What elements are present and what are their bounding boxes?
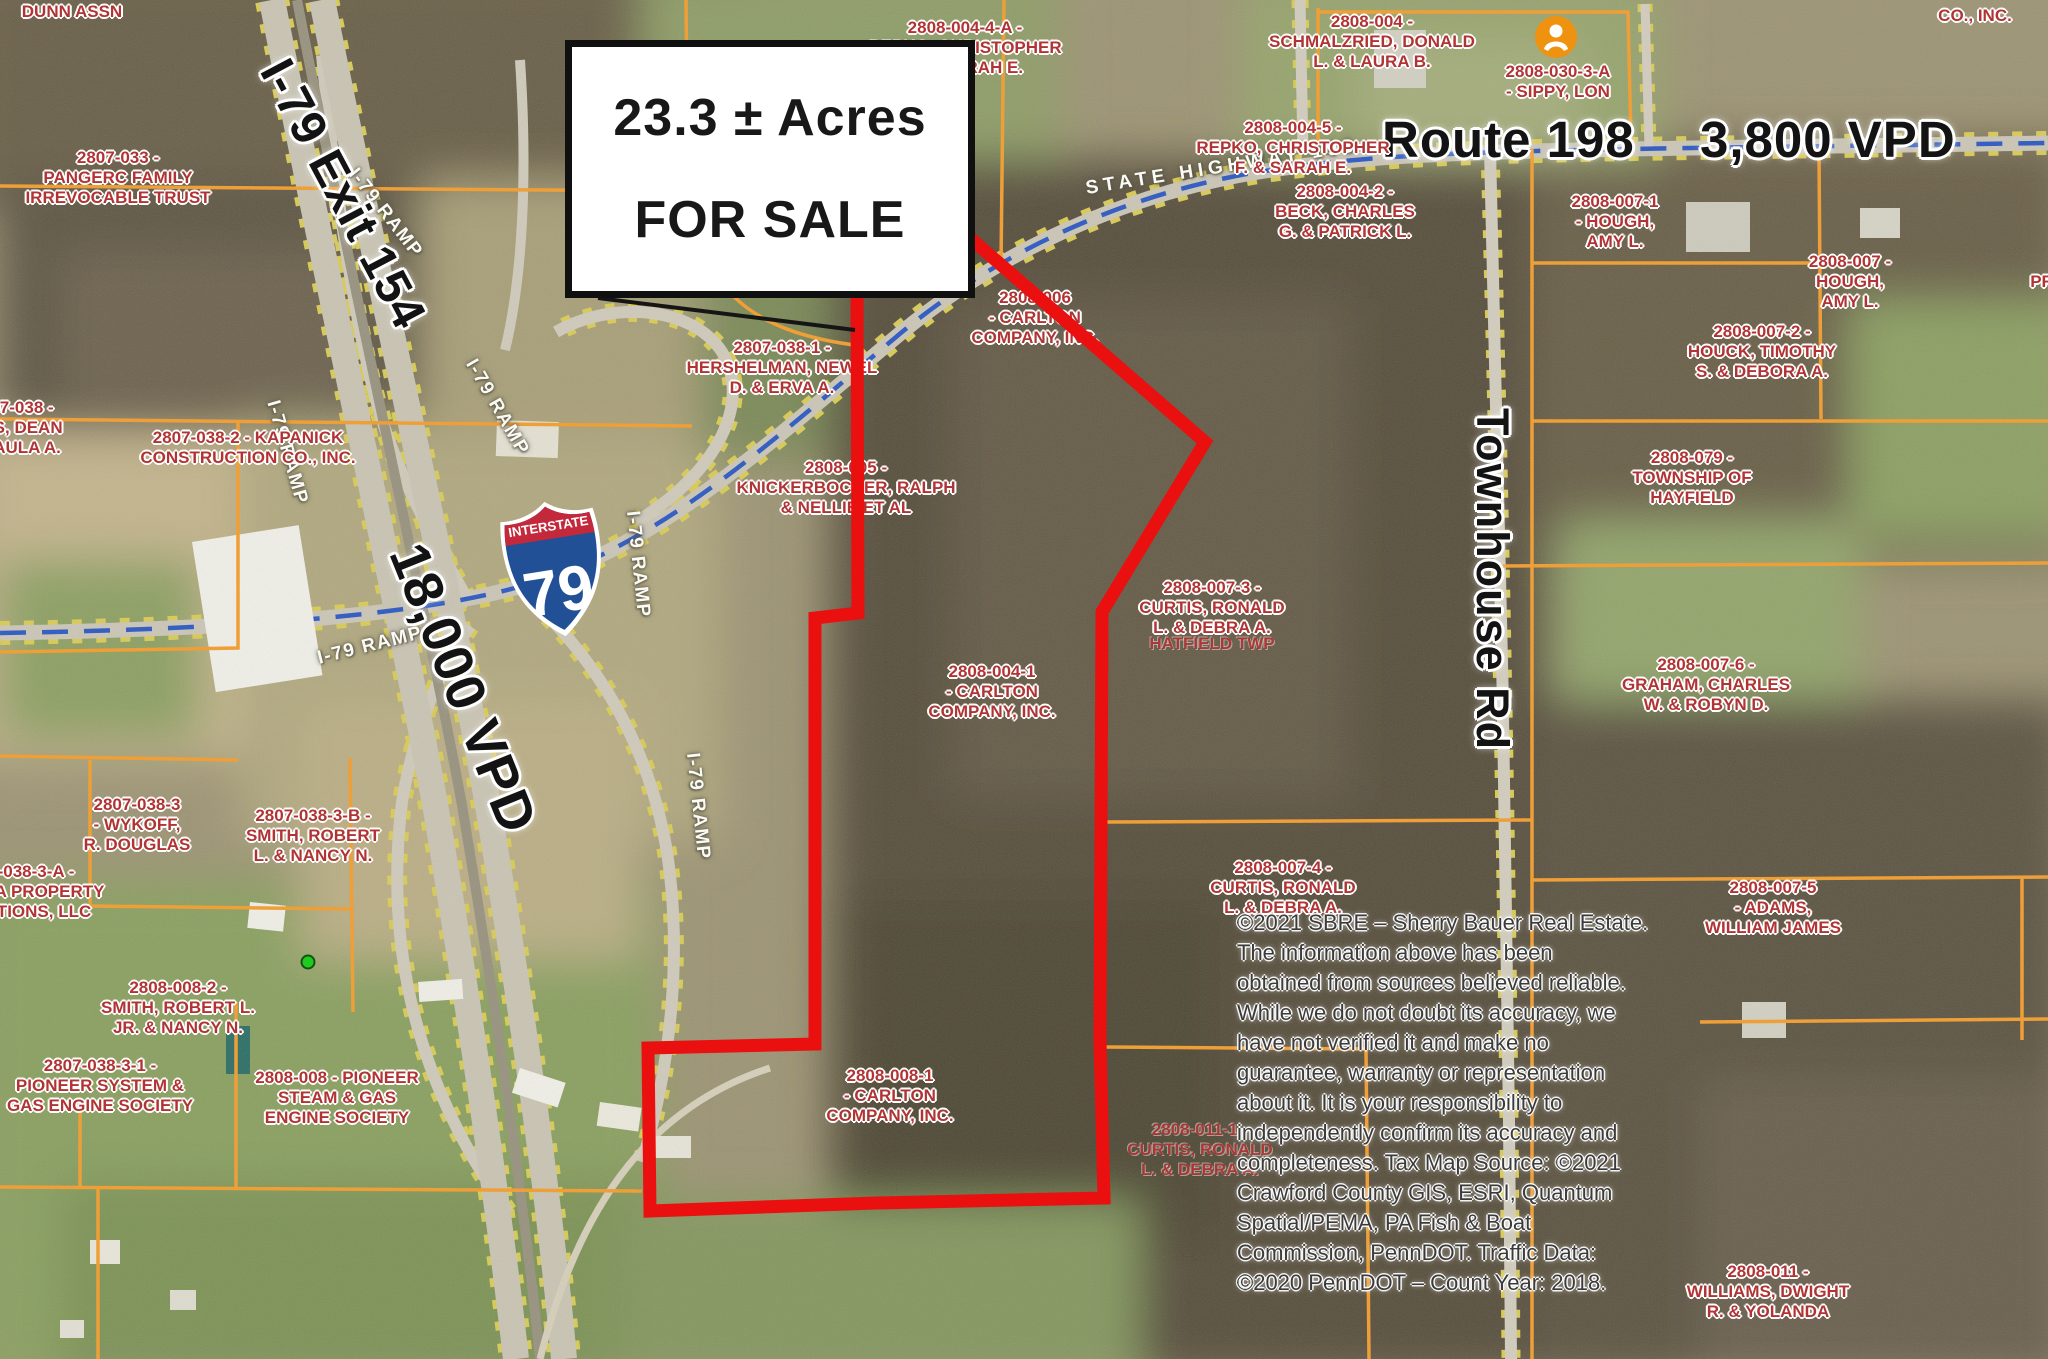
parcel-label: 2808-007 -HOUGH,AMY L. <box>1809 252 1891 312</box>
townhouse-rd-label: Townhouse Rd <box>1466 408 1518 751</box>
parcel-label: 2808-007-3 -CURTIS, RONALDL. & DEBRA A. <box>1139 578 1284 638</box>
parcel-label: 2808-004-1- CARLTONCOMPANY, INC. <box>928 662 1055 722</box>
parcel-label: 2808-008-2 -SMITH, ROBERT L.JR. & NANCY … <box>101 978 255 1038</box>
parcel-label: 07-038 -AS, DEANPAULA A. <box>0 398 63 458</box>
parcel-label: 2808-004-5 -REPKO, CHRISTOPHERF. & SARAH… <box>1196 118 1389 178</box>
parcel-label: 2808-007-5- ADAMS,WILLIAM JAMES <box>1705 878 1841 938</box>
parcel-label: 2807-038-3-B -SMITH, ROBERTL. & NANCY N. <box>246 806 380 866</box>
parcel-label: 2808-030-3-A- SIPPY, LON <box>1506 62 1611 102</box>
parcel-label: 2807-033 -PANGERC FAMILYIRREVOCABLE TRUS… <box>25 148 210 208</box>
route-198-label: Route 198 <box>1382 110 1635 169</box>
parcel-label: CO., INC. <box>1938 6 2012 26</box>
disclaimer-text: ©2021 SBRE – Sherry Bauer Real Estate. T… <box>1237 908 1689 1298</box>
parcel-label: 2808-007-2 -HOUCK, TIMOTHYS. & DEBORA A. <box>1688 322 1836 382</box>
route-198-traffic-count-label: 3,800 VPD <box>1700 110 1956 169</box>
parcel-label: 2807-038-1 -HERSHELMAN, NEWELD. & ERVA A… <box>687 338 878 398</box>
parcel-label: 2807-038-2 - KAPANICKCONSTRUCTION CO., I… <box>140 428 355 468</box>
parcel-label: DUNN ASSN <box>22 2 122 22</box>
interstate-79-shield-icon: INTERSTATE 79 <box>482 489 629 649</box>
parcel-label: 2808-011 -WILLIAMS, DWIGHTR. & YOLANDA <box>1687 1262 1849 1322</box>
parcel-label: 2808-007-6 -GRAHAM, CHARLESW. & ROBYN D. <box>1622 655 1790 715</box>
parcel-label: 2808-004 -SCHMALZRIED, DONALDL. & LAURA … <box>1269 12 1475 72</box>
parcel-label: 2808-006- CARLTONCOMPANY, INC. <box>971 288 1098 348</box>
parcel-label: 2808-004-2 -BECK, CHARLESG. & PATRICK L. <box>1275 182 1415 242</box>
site-dot <box>302 956 315 969</box>
acreage-text: 23.3 ± Acres <box>613 88 926 148</box>
parcel-label: 2808-005 -KNICKERBOCKER, RALPH& NELLIE E… <box>736 458 955 518</box>
parcel-label: PR <box>2030 272 2048 292</box>
parcel-label: 2808-008-1- CARLTONCOMPANY, INC. <box>826 1066 953 1126</box>
aerial-map: DUNN ASSN2807-033 -PANGERC FAMILYIRREVOC… <box>0 0 2048 1359</box>
parcel-label: -038-3-A -N PA PROPERTYSITIONS, LLC <box>0 862 104 922</box>
parcel-label: 2808-079 -TOWNSHIP OFHAYFIELD <box>1632 448 1751 508</box>
parcel-label: 2808-007-1- HOUGH,AMY L. <box>1572 192 1659 252</box>
for-sale-text: FOR SALE <box>635 190 906 250</box>
for-sale-callout-box: 23.3 ± Acres FOR SALE <box>565 40 975 298</box>
shield-number-text: 79 <box>519 551 599 631</box>
parcel-label: 2807-038-3-1 -PIONEER SYSTEM &GAS ENGINE… <box>7 1056 193 1116</box>
parcel-label: 2807-038-3- WYKOFF,R. DOUGLAS <box>84 795 191 855</box>
poi-marker-icon <box>1534 15 1578 59</box>
parcel-label: 2808-008 - PIONEERSTEAM & GASENGINE SOCI… <box>255 1068 418 1128</box>
